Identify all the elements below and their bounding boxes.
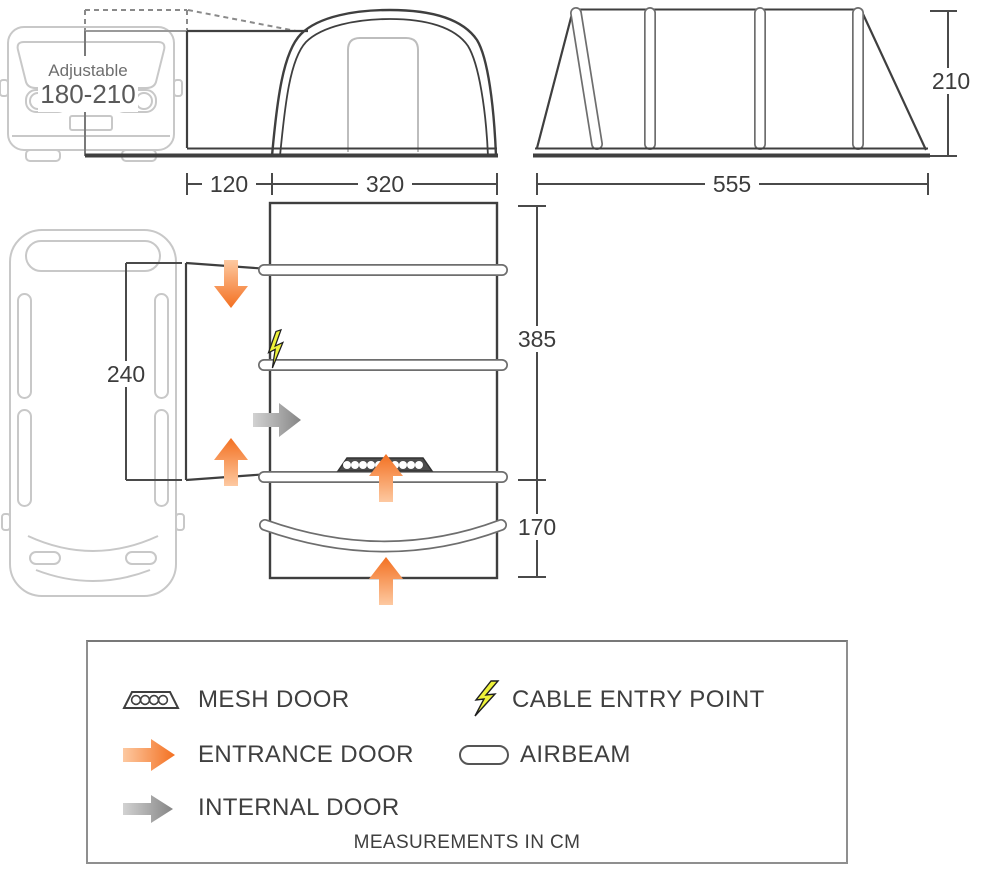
van-plan-icon xyxy=(2,230,184,596)
legend-internal-door-label: INTERNAL DOOR xyxy=(198,794,400,822)
side-left-edge xyxy=(537,10,573,148)
measurements-note: MEASUREMENTS IN CM xyxy=(88,832,846,854)
side-view: 555 210 xyxy=(533,10,978,198)
legend-cable-entry-label: CABLE ENTRY POINT xyxy=(512,686,765,714)
internal-door-arrow xyxy=(253,403,301,437)
dim-body-width: 320 xyxy=(366,171,404,197)
legend-mesh-door-label: MESH DOOR xyxy=(198,686,350,714)
tunnel-front xyxy=(187,31,308,148)
awning-dimensions-diagram: Adjustable 180-210 120 320 xyxy=(0,0,1000,875)
side-right-edge xyxy=(863,14,926,150)
internal-door-icon xyxy=(120,790,178,828)
entrance-arrow-front xyxy=(369,557,403,605)
front-view: Adjustable 180-210 120 320 xyxy=(0,10,498,197)
legend-box: MESH DOOR CABLE ENTRY POINT ENTRANCE DOO… xyxy=(86,640,848,864)
mesh-door-icon xyxy=(122,688,180,710)
side-airbeams xyxy=(576,13,858,144)
front-door-outline xyxy=(348,38,418,152)
legend-airbeam-label: AIRBEAM xyxy=(520,741,631,769)
entrance-door-icon xyxy=(120,736,178,774)
cable-entry-point-icon xyxy=(472,680,502,718)
legend-entrance-door-label: ENTRANCE DOOR xyxy=(198,741,414,769)
dim-plan-porch: 170 xyxy=(518,514,556,540)
adjustable-range-label: 180-210 xyxy=(40,79,135,109)
plan-view: 240 xyxy=(2,203,564,605)
dim-side-length: 555 xyxy=(713,171,751,197)
adjustable-label: Adjustable xyxy=(48,61,127,80)
dim-side-height: 210 xyxy=(932,68,970,94)
entrance-arrow-bottom-tunnel xyxy=(214,438,248,486)
awning-plan-outline xyxy=(270,203,497,578)
plan-airbeams xyxy=(264,270,502,547)
airbeam-icon xyxy=(458,743,512,767)
dim-tunnel-width: 120 xyxy=(210,171,248,197)
dim-plan-main: 385 xyxy=(518,326,556,352)
dim-plan-opening: 240 xyxy=(107,361,145,387)
